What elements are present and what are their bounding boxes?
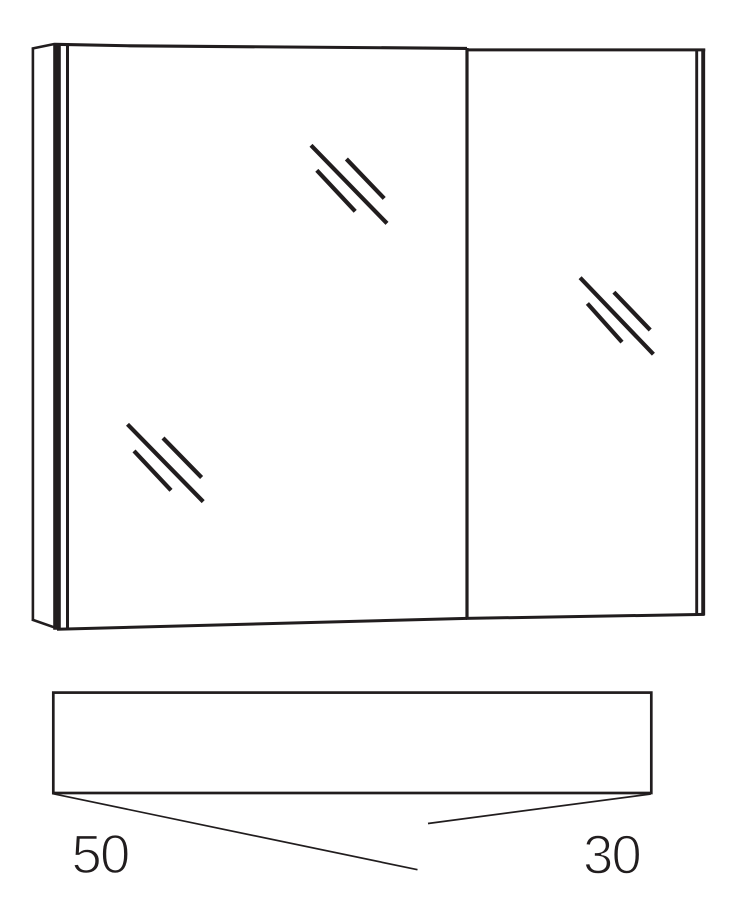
svg-text:50: 50	[72, 824, 130, 885]
svg-text:30: 30	[583, 825, 641, 886]
